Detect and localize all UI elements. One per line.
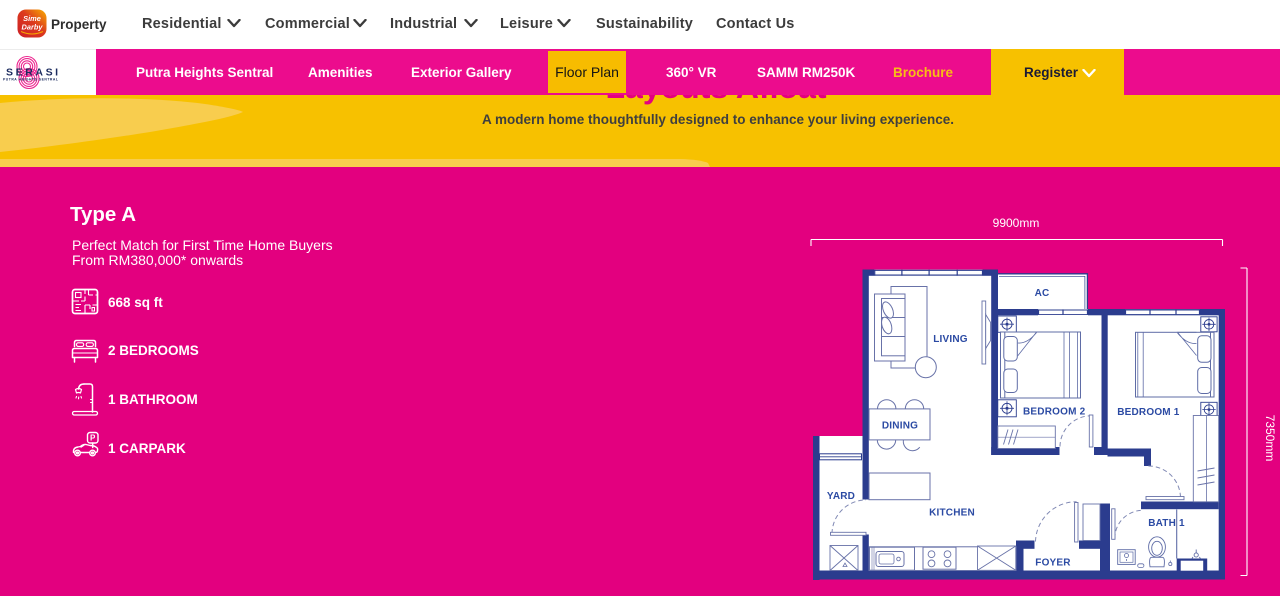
svg-text:LIVING: LIVING bbox=[933, 334, 968, 345]
svg-text:YARD: YARD bbox=[827, 491, 855, 502]
svg-text:AC: AC bbox=[1035, 288, 1050, 299]
svg-text:9900mm: 9900mm bbox=[993, 216, 1040, 230]
svg-text:BATH 1: BATH 1 bbox=[1148, 518, 1185, 529]
svg-text:DINING: DINING bbox=[882, 420, 918, 431]
svg-text:KITCHEN: KITCHEN bbox=[929, 508, 975, 519]
svg-text:P: P bbox=[90, 434, 96, 443]
svg-text:BEDROOM 2: BEDROOM 2 bbox=[1023, 407, 1086, 418]
svg-text:7350mm: 7350mm bbox=[1263, 415, 1277, 462]
svg-text:FOYER: FOYER bbox=[1035, 558, 1071, 569]
svg-text:BEDROOM 1: BEDROOM 1 bbox=[1117, 407, 1180, 418]
